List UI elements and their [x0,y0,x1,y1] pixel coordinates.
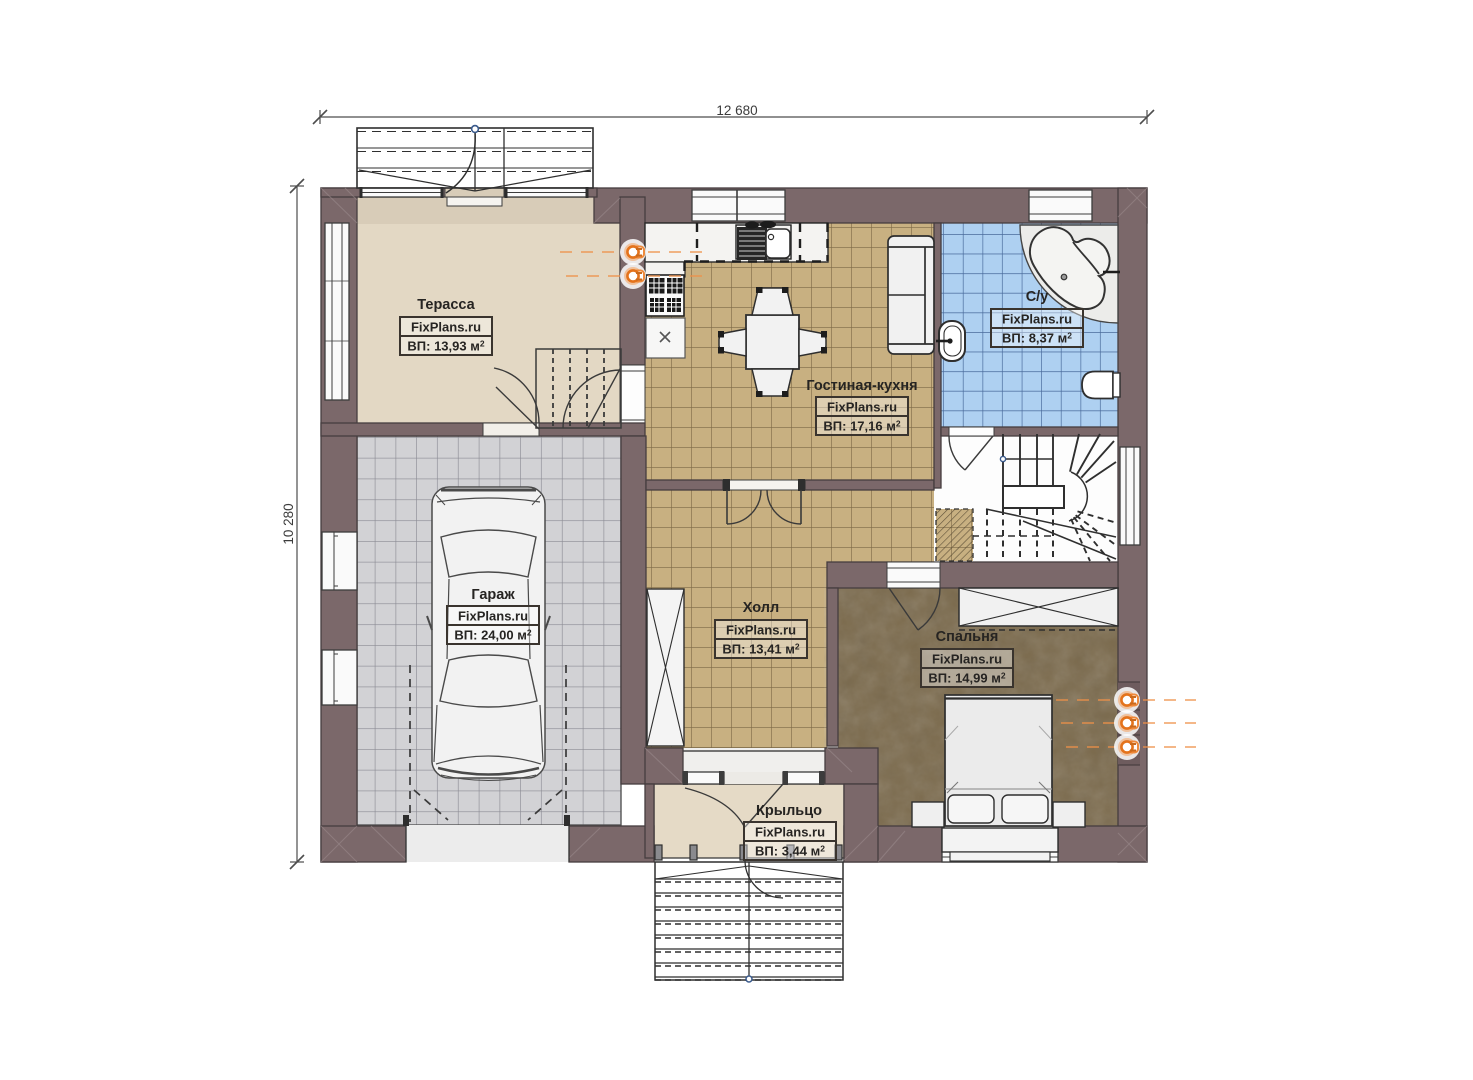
svg-text:Гараж: Гараж [471,587,515,603]
svg-text:С/у: С/у [1026,289,1049,305]
svg-text:Спальня: Спальня [936,629,999,645]
svg-text:ВП: 13,41 м2: ВП: 13,41 м2 [722,642,799,657]
svg-text:10 280: 10 280 [281,503,296,544]
svg-text:FixPlans.ru: FixPlans.ru [932,652,1002,667]
svg-text:FixPlans.ru: FixPlans.ru [1002,312,1072,327]
svg-text:ВП: 3,44 м2: ВП: 3,44 м2 [755,844,825,859]
svg-text:FixPlans.ru: FixPlans.ru [726,623,796,638]
svg-text:FixPlans.ru: FixPlans.ru [755,825,825,840]
svg-text:Терасса: Терасса [417,297,475,313]
svg-text:ВП: 8,37 м2: ВП: 8,37 м2 [1002,331,1072,346]
svg-text:12 680: 12 680 [716,103,757,118]
svg-text:FixPlans.ru: FixPlans.ru [411,320,481,335]
svg-text:ВП: 13,93 м2: ВП: 13,93 м2 [407,339,484,354]
svg-text:ВП: 24,00 м2: ВП: 24,00 м2 [454,628,531,643]
svg-text:ВП: 14,99 м2: ВП: 14,99 м2 [928,671,1005,686]
svg-text:FixPlans.ru: FixPlans.ru [458,609,528,624]
svg-text:ВП: 17,16 м2: ВП: 17,16 м2 [823,419,900,434]
svg-text:Крыльцо: Крыльцо [756,803,822,819]
svg-text:Гостиная-кухня: Гостиная-кухня [806,378,917,394]
svg-text:Холл: Холл [743,600,779,616]
svg-text:FixPlans.ru: FixPlans.ru [827,400,897,415]
